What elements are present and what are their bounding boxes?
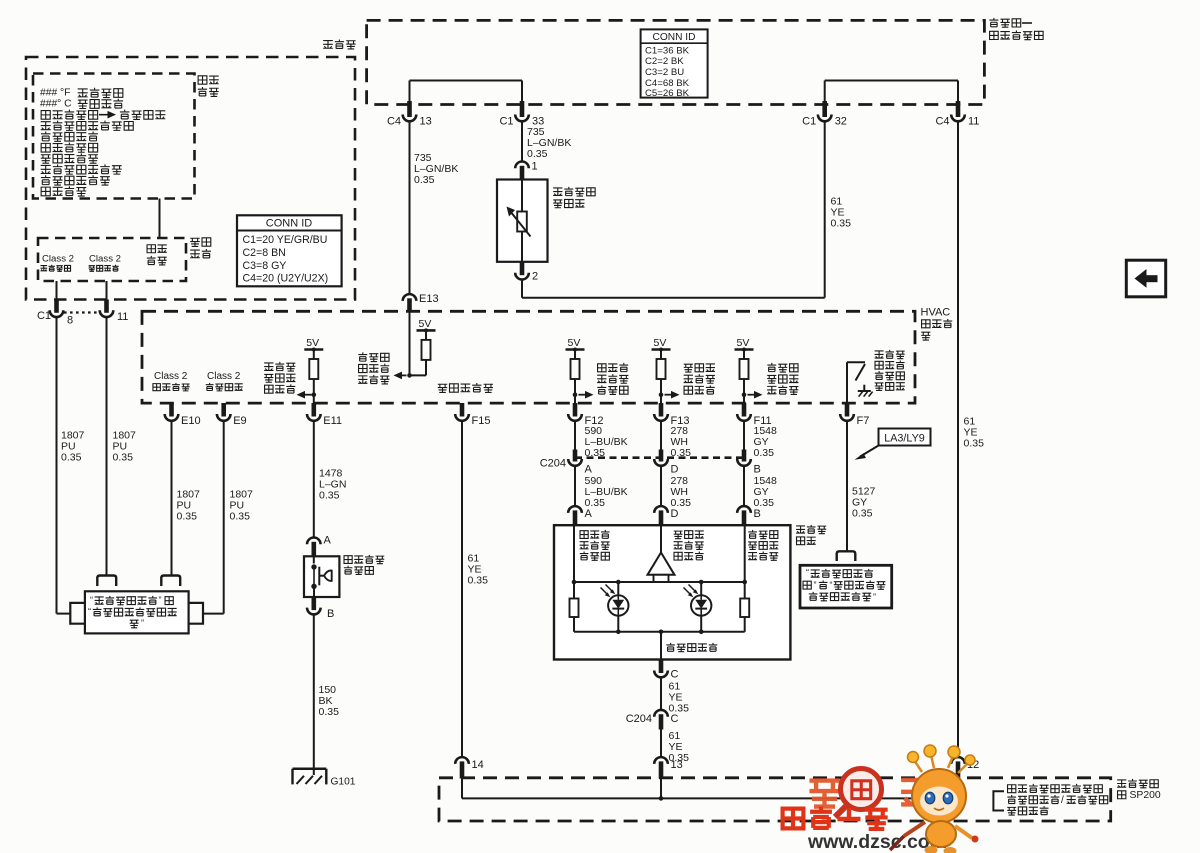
svg-text:C3=2 BU: C3=2 BU xyxy=(645,67,684,78)
svg-text:D: D xyxy=(671,464,679,476)
svg-text:0.35: 0.35 xyxy=(319,706,340,718)
svg-text:B: B xyxy=(327,608,334,620)
svg-text:0.35: 0.35 xyxy=(964,438,985,450)
svg-text:”: ” xyxy=(159,595,162,605)
svg-text:8: 8 xyxy=(67,315,73,327)
svg-text:E13: E13 xyxy=(419,293,439,305)
svg-text:”: ” xyxy=(814,580,817,590)
svg-text:E10: E10 xyxy=(181,415,201,427)
svg-text:###° C: ###° C xyxy=(40,99,72,110)
svg-text:“: “ xyxy=(88,607,91,617)
svg-text:LA3/LY9: LA3/LY9 xyxy=(884,433,925,445)
svg-text:A: A xyxy=(585,464,593,476)
svg-text:5V: 5V xyxy=(737,337,750,349)
svg-text:0.35: 0.35 xyxy=(831,218,852,230)
svg-text:F15: F15 xyxy=(472,415,491,427)
svg-text:0.35: 0.35 xyxy=(319,490,340,502)
svg-text:E11: E11 xyxy=(323,415,342,427)
svg-text:C4: C4 xyxy=(935,116,949,128)
svg-text:0.35: 0.35 xyxy=(852,508,873,520)
svg-text:C204: C204 xyxy=(626,713,652,725)
svg-text:5V: 5V xyxy=(654,337,667,349)
svg-text:C4: C4 xyxy=(387,116,401,128)
svg-text:0.35: 0.35 xyxy=(414,174,435,186)
svg-text:B: B xyxy=(754,464,761,476)
svg-text:D: D xyxy=(671,508,679,520)
svg-text:2: 2 xyxy=(532,271,538,283)
svg-text:11: 11 xyxy=(117,311,128,323)
svg-text:F7: F7 xyxy=(857,415,870,427)
svg-text:C204: C204 xyxy=(540,458,566,470)
svg-text:”: ” xyxy=(141,618,144,628)
svg-text:G101: G101 xyxy=(331,777,356,788)
svg-text:0.35: 0.35 xyxy=(230,511,251,523)
svg-text:13: 13 xyxy=(671,759,683,771)
svg-text:1: 1 xyxy=(532,161,538,173)
svg-text:“: “ xyxy=(90,595,93,605)
svg-text:C2=8 BN: C2=8 BN xyxy=(243,247,286,259)
svg-text:C1=36 BK: C1=36 BK xyxy=(645,45,690,56)
svg-text:C3=8 GY: C3=8 GY xyxy=(243,260,287,272)
svg-text:5V: 5V xyxy=(419,318,432,330)
svg-text:“: “ xyxy=(806,568,809,578)
svg-text:C: C xyxy=(671,669,679,681)
svg-text:0.35: 0.35 xyxy=(61,452,82,464)
svg-text:“: “ xyxy=(830,580,833,590)
svg-text:A: A xyxy=(324,535,332,547)
svg-text:0.35: 0.35 xyxy=(468,575,489,587)
svg-text:C1: C1 xyxy=(802,116,816,128)
svg-text:/: / xyxy=(1061,795,1064,806)
svg-text:CONN ID: CONN ID xyxy=(266,218,313,230)
svg-text:”: ” xyxy=(873,592,876,602)
svg-text:C2=2 BK: C2=2 BK xyxy=(645,56,684,67)
svg-text:HVAC: HVAC xyxy=(921,307,951,319)
svg-text:CONN ID: CONN ID xyxy=(652,32,695,43)
svg-text:32: 32 xyxy=(835,116,847,128)
svg-text:Class 2: Class 2 xyxy=(207,371,241,382)
svg-text:11: 11 xyxy=(968,116,979,128)
svg-text:C4=68 BK: C4=68 BK xyxy=(645,78,690,89)
svg-text:B: B xyxy=(754,508,761,520)
svg-text:Class 2: Class 2 xyxy=(42,254,74,265)
svg-text:5V: 5V xyxy=(306,337,319,349)
svg-text:Class 2: Class 2 xyxy=(89,254,121,265)
svg-text:C1=20 YE/GR/BU: C1=20 YE/GR/BU xyxy=(243,234,328,246)
svg-text:C1: C1 xyxy=(499,116,513,128)
svg-text:14: 14 xyxy=(472,759,484,771)
svg-text:SP200: SP200 xyxy=(1130,790,1161,801)
svg-text:C4=20 (U2Y/U2X): C4=20 (U2Y/U2X) xyxy=(243,272,329,284)
svg-text:13: 13 xyxy=(420,116,432,128)
svg-text:C1: C1 xyxy=(37,310,51,322)
svg-text:C: C xyxy=(671,713,679,725)
svg-text:5V: 5V xyxy=(568,337,581,349)
svg-text:E9: E9 xyxy=(233,415,246,427)
svg-text:0.35: 0.35 xyxy=(177,511,198,523)
svg-text:0.35: 0.35 xyxy=(527,148,548,160)
svg-text:A: A xyxy=(585,508,593,520)
svg-text:C5=26 BK: C5=26 BK xyxy=(645,88,690,99)
svg-text:0.35: 0.35 xyxy=(113,452,134,464)
svg-text:### °F: ### °F xyxy=(40,88,70,99)
svg-text:0.35: 0.35 xyxy=(754,447,775,459)
svg-text:Class 2: Class 2 xyxy=(154,371,188,382)
